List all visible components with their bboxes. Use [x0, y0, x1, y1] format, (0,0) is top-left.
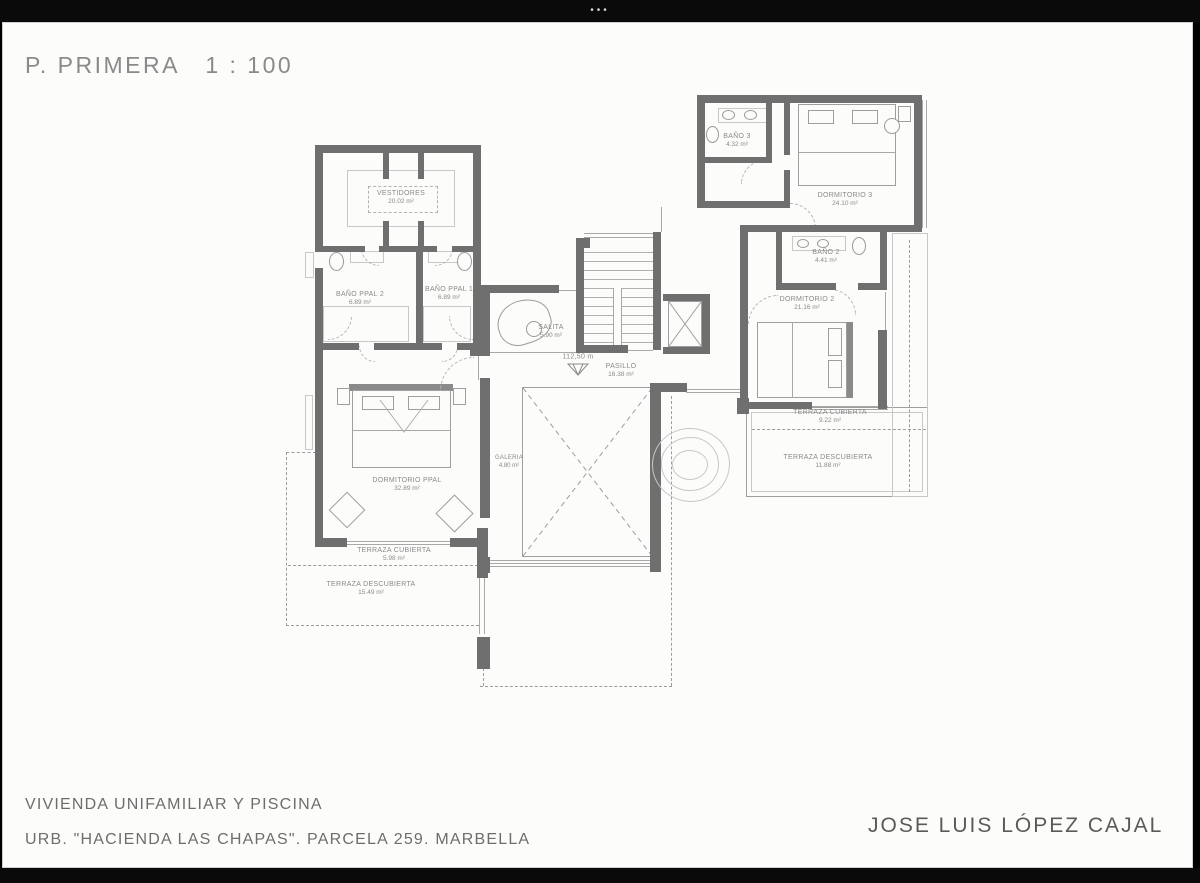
- wall: [663, 347, 710, 354]
- floor-plan: P. PRIMERA 1 : 100 VIVIENDA UNIFAMILIAR …: [0, 0, 1200, 883]
- railing-line: [479, 578, 480, 634]
- terrace-separator: [288, 565, 478, 566]
- window-line: [922, 100, 923, 228]
- wall: [576, 238, 590, 248]
- project-line1: VIVIENDA UNIFAMILIAR Y PISCINA: [25, 796, 323, 814]
- architect-name: JOSE LUIS LÓPEZ CAJAL: [868, 814, 1163, 838]
- pillow: [852, 110, 878, 124]
- window-line: [885, 292, 886, 330]
- chair: [884, 118, 900, 134]
- room-area: 11.88 m²: [815, 462, 840, 470]
- room-label-bano-3: BAÑO 3 4.32 m²: [723, 132, 750, 150]
- wall: [473, 264, 481, 350]
- armchair: [329, 492, 366, 529]
- room-label-terraza-descubierta-left: TERRAZA DESCUBIERTA 15.49 m²: [326, 580, 415, 598]
- sink-basin: [797, 239, 809, 248]
- room-area: 16.38 m²: [608, 371, 634, 379]
- room-label-vestidores: VESTIDORES 20.02 m²: [377, 189, 425, 207]
- sink-basin: [744, 110, 757, 120]
- room-area: 6.89 m²: [349, 299, 371, 307]
- door-arc: [435, 248, 453, 266]
- partition-line: [686, 389, 740, 390]
- room-name: DORMITORIO 2: [780, 295, 835, 304]
- wall: [480, 378, 490, 518]
- room-area: 5.90 m²: [540, 332, 562, 340]
- room-name: BAÑO PPAL 1: [425, 285, 473, 294]
- window-line: [926, 100, 927, 228]
- dashed-boundary: [480, 686, 672, 687]
- stair-landing-line: [584, 233, 653, 234]
- wall: [576, 248, 584, 350]
- bed-line: [798, 152, 896, 153]
- room-area: 24.10 m²: [832, 200, 858, 208]
- wall: [315, 538, 347, 547]
- door-arc: [359, 346, 375, 362]
- room-label-pasillo: PASILLO 16.38 m²: [606, 362, 637, 380]
- room-area: 20.02 m²: [388, 198, 414, 206]
- door-arc: [748, 295, 778, 325]
- toilet: [457, 252, 472, 271]
- room-name: TERRAZA CUBIERTA: [357, 546, 431, 555]
- wall: [776, 283, 836, 290]
- bed-headboard: [847, 322, 853, 398]
- window-mark: [305, 395, 313, 450]
- glass-line: [345, 544, 451, 545]
- dashed-boundary: [483, 668, 484, 686]
- tree-symbol: [672, 450, 708, 480]
- dashed-boundary: [286, 452, 287, 626]
- terrace-separator: [752, 429, 926, 430]
- door-arc: [440, 357, 474, 391]
- room-label-salita: SALITA 5.90 m²: [538, 323, 563, 341]
- page-title: P. PRIMERA 1 : 100: [25, 52, 293, 79]
- glass-line: [490, 566, 652, 567]
- wall: [697, 95, 705, 207]
- wall: [418, 221, 424, 248]
- wall: [315, 145, 323, 249]
- sink-basin: [817, 239, 829, 248]
- window-mark: [305, 252, 314, 278]
- partition-line: [686, 392, 740, 393]
- wall: [776, 232, 782, 288]
- wall: [740, 225, 748, 409]
- wall: [914, 95, 922, 232]
- dashed-boundary: [286, 452, 316, 453]
- room-name: DORMITORIO PPAL: [372, 476, 441, 485]
- glass-line: [345, 541, 451, 542]
- room-label-dormitorio-3: DORMITORIO 3 24.10 m²: [818, 191, 873, 209]
- nightstand: [898, 106, 911, 122]
- room-area: 21.16 m²: [794, 304, 820, 312]
- wall: [416, 252, 423, 345]
- terrace-side-strip: [892, 233, 928, 497]
- room-name: BAÑO 2: [812, 248, 839, 257]
- dashed-boundary: [909, 240, 910, 492]
- toilet: [852, 237, 866, 255]
- wall: [784, 103, 790, 155]
- partition-line: [661, 207, 662, 232]
- window-line: [810, 406, 888, 407]
- toilet: [329, 252, 344, 271]
- room-name: BAÑO PPAL 2: [336, 290, 384, 299]
- wall: [383, 221, 389, 248]
- room-area: 15.49 m²: [358, 589, 384, 597]
- wall: [702, 294, 710, 354]
- wall: [697, 201, 790, 208]
- elevator-cross-icon: [668, 301, 702, 347]
- level-marker-text: 112,50 m: [562, 352, 593, 361]
- door-arc: [442, 346, 458, 362]
- pillow: [828, 328, 842, 356]
- room-area: 6.89 m²: [438, 294, 460, 302]
- wall: [697, 95, 922, 103]
- level-value: 112,50 m: [562, 352, 593, 361]
- room-label-dormitorio-2: DORMITORIO 2 21.16 m²: [780, 295, 835, 313]
- room-area: 4.41 m²: [815, 257, 837, 265]
- room-name: SALITA: [538, 323, 563, 332]
- room-name: TERRAZA DESCUBIERTA: [326, 580, 415, 589]
- bed-line: [792, 322, 793, 398]
- stair-landing-line: [584, 237, 653, 238]
- room-label-bano-ppal-2: BAÑO PPAL 2 6.89 m²: [336, 290, 384, 308]
- room-label-terraza-descubierta-right: TERRAZA DESCUBIERTA 11.88 m²: [783, 453, 872, 471]
- wall: [315, 145, 481, 153]
- wall: [315, 343, 359, 350]
- partition-line: [559, 290, 576, 291]
- room-area: 9.22 m²: [819, 417, 841, 425]
- wall: [452, 246, 481, 252]
- toilet: [706, 126, 719, 143]
- sink-basin: [722, 110, 735, 120]
- room-area: 4.80 m²: [499, 463, 519, 471]
- wall: [784, 170, 790, 208]
- bed-fold: [352, 398, 451, 438]
- room-name: GALERIA: [495, 455, 523, 463]
- pillow: [828, 360, 842, 388]
- wall: [880, 232, 887, 290]
- glass-line: [490, 563, 652, 564]
- void-cross-icon: [522, 387, 653, 557]
- room-name: VESTIDORES: [377, 189, 425, 198]
- wall: [704, 157, 772, 163]
- sofa: [492, 293, 557, 352]
- room-label-galeria: GALERIA 4.80 m²: [495, 455, 523, 471]
- glass-line: [490, 560, 652, 561]
- wall: [383, 153, 389, 179]
- railing-line: [484, 578, 485, 634]
- room-label-bano-ppal-1: BAÑO PPAL 1 6.89 m²: [425, 285, 473, 303]
- level-marker-icon: [566, 363, 590, 376]
- stair-bottom-line: [626, 350, 653, 351]
- room-area: 5.98 m²: [383, 555, 405, 563]
- room-area: 4.32 m²: [726, 141, 748, 149]
- door-arc: [741, 160, 765, 184]
- room-label-terraza-cubierta-left: TERRAZA CUBIERTA 5.98 m²: [357, 546, 431, 564]
- room-name: PASILLO: [606, 362, 637, 371]
- wall: [740, 225, 922, 232]
- wall-pillar: [477, 637, 490, 669]
- stair-stringer: [613, 288, 622, 349]
- wall: [374, 343, 442, 350]
- wall: [653, 232, 661, 350]
- wall: [473, 145, 481, 277]
- nightstand: [337, 388, 350, 405]
- room-label-bano-2: BAÑO 2 4.41 m²: [812, 248, 839, 266]
- room-name: BAÑO 3: [723, 132, 750, 141]
- room-name: DORMITORIO 3: [818, 191, 873, 200]
- pillow: [808, 110, 834, 124]
- room-area: 32.89 m²: [394, 485, 420, 493]
- wall: [379, 246, 437, 252]
- wall: [477, 528, 488, 578]
- wall: [418, 153, 424, 179]
- room-name: TERRAZA CUBIERTA: [793, 408, 867, 417]
- wall: [766, 103, 772, 161]
- wall: [315, 350, 323, 540]
- wall: [315, 246, 365, 252]
- wall: [858, 283, 887, 290]
- wall: [315, 268, 323, 350]
- room-label-dormitorio-ppal: DORMITORIO PPAL 32.89 m²: [372, 476, 441, 494]
- wall: [878, 330, 887, 409]
- wall: [481, 285, 490, 355]
- wall-pillar: [737, 398, 749, 414]
- project-line2: URB. "HACIENDA LAS CHAPAS". PARCELA 259.…: [25, 831, 530, 849]
- dashed-boundary: [286, 625, 479, 626]
- room-label-terraza-cubierta-right: TERRAZA CUBIERTA 9.22 m²: [793, 408, 867, 426]
- armchair: [435, 494, 473, 532]
- wall: [481, 285, 559, 293]
- room-name: TERRAZA DESCUBIERTA: [783, 453, 872, 462]
- viewer-bottom-bar: [0, 868, 1200, 883]
